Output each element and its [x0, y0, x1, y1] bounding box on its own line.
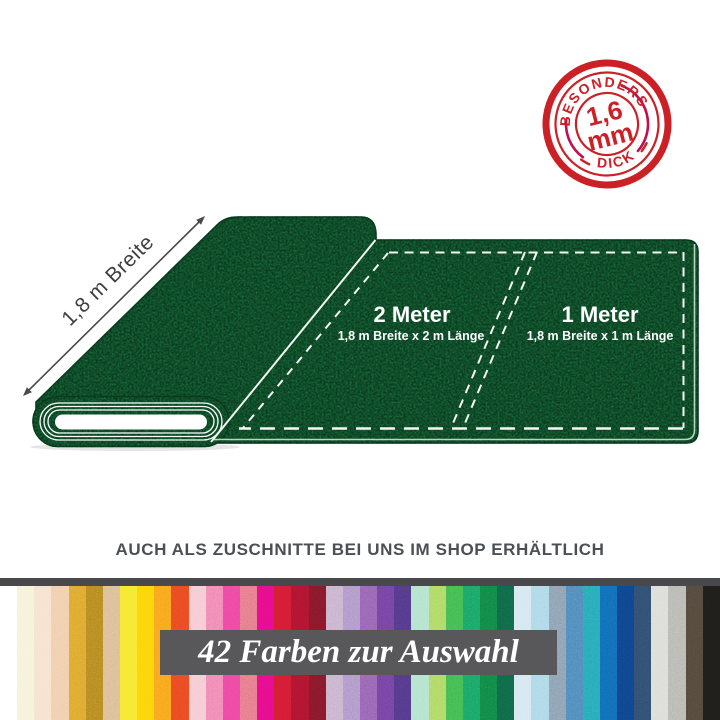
section-2m-subtitle: 1,8 m Breite x 2 m Länge	[338, 329, 485, 343]
color-swatch	[103, 586, 120, 720]
strip-top-bar	[0, 578, 720, 586]
color-swatch	[0, 586, 17, 720]
felt-roll-diagram: 2 Meter 1,8 m Breite x 2 m Länge 1 Meter…	[0, 185, 720, 475]
color-swatch	[686, 586, 703, 720]
color-swatch	[634, 586, 651, 720]
color-swatch	[703, 586, 720, 720]
section-1m-title: 1 Meter	[561, 302, 638, 327]
color-swatch	[69, 586, 86, 720]
color-swatch	[668, 586, 685, 720]
color-swatch	[651, 586, 668, 720]
color-swatch	[137, 586, 154, 720]
color-swatch	[583, 586, 600, 720]
color-swatch	[600, 586, 617, 720]
color-swatch	[617, 586, 634, 720]
color-strip: 42 Farben zur Auswahl	[0, 578, 720, 720]
color-swatch	[17, 586, 34, 720]
color-swatch	[566, 586, 583, 720]
section-1m-subtitle: 1,8 m Breite x 1 m Länge	[527, 329, 674, 343]
color-swatch	[86, 586, 103, 720]
stamp-group: BESONDERS DICK 1,6 mm	[537, 54, 677, 194]
color-swatch	[51, 586, 68, 720]
stamp-dash-left	[581, 158, 589, 166]
color-count-banner-text: 42 Farben zur Auswahl	[198, 634, 519, 671]
thickness-stamp: BESONDERS DICK 1,6 mm	[537, 54, 677, 194]
color-swatch	[34, 586, 51, 720]
roll-core-slot	[55, 415, 207, 430]
color-count-banner: 42 Farben zur Auswahl	[160, 630, 557, 675]
color-swatch	[120, 586, 137, 720]
shop-tagline: AUCH ALS ZUSCHNITTE BEI UNS IM SHOP ERHÄ…	[0, 540, 720, 560]
section-2m-title: 2 Meter	[373, 302, 450, 327]
